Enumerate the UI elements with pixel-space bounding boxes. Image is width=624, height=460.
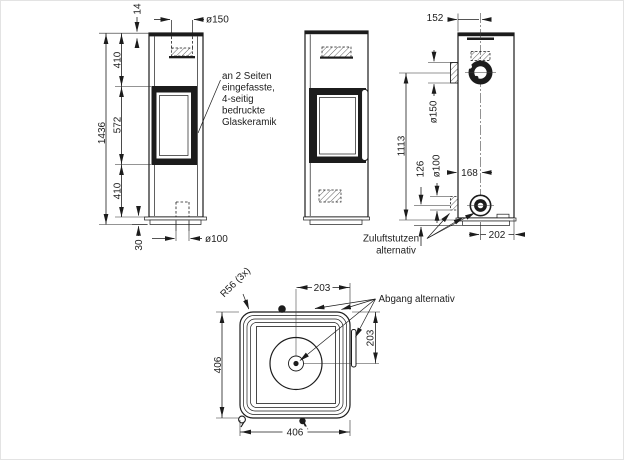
- dim-rear-flue-center-height: 1113: [397, 135, 408, 156]
- dim-top-width: 406: [287, 428, 304, 439]
- dim-rear-stub-diameter: ø150: [429, 100, 440, 123]
- dim-rear-center-to-edge: 202: [489, 230, 506, 241]
- glass-note-line-5: Glaskeramik: [222, 117, 277, 128]
- dim-rear-side-to-center: 168: [461, 168, 478, 179]
- side-floor-pipe-opening: [319, 190, 341, 202]
- abgang-note-label: Abgang alternativ: [379, 294, 455, 305]
- dim-top-top-to-center: 203: [366, 329, 377, 346]
- zuluft-note-line-1: Zuluftstutzen: [363, 234, 419, 245]
- side-top-flue-opening: [320, 47, 353, 59]
- top-door-handle: [352, 330, 357, 368]
- dim-front-flue-diameter: ø150: [206, 15, 229, 26]
- side-view: [304, 31, 370, 225]
- top-knob: [278, 305, 286, 313]
- glass-note-line-3: 4-seitig: [222, 94, 254, 105]
- glass-note-line-1: an 2 Seiten: [222, 71, 272, 82]
- front-door-window: [152, 86, 198, 165]
- technical-drawing-stove: 14 ø150 410 572 410 1436: [0, 0, 624, 460]
- dim-front-top-plate: 14: [133, 3, 144, 15]
- dim-top-center-to-right: 203: [314, 283, 331, 294]
- dim-rear-lower-stub-height: 126: [416, 160, 427, 177]
- dim-front-window-section: 572: [113, 116, 124, 133]
- dim-front-lower-section: 410: [113, 182, 124, 199]
- dim-rear-lower-stub-diameter: ø100: [432, 154, 443, 177]
- dim-rear-flue-center-offset: 152: [427, 13, 444, 24]
- zuluft-note-line-2: alternativ: [376, 246, 416, 257]
- rear-upper-stub: [451, 63, 459, 84]
- drawing-canvas: 14 ø150 410 572 410 1436: [0, 0, 624, 460]
- glass-note-line-4: bedruckte: [222, 106, 266, 117]
- rear-lower-stub: [451, 197, 459, 211]
- dim-front-total-height: 1436: [97, 121, 108, 144]
- dim-top-depth: 406: [213, 356, 224, 373]
- dim-front-floor-pipe-diameter: ø100: [205, 234, 228, 245]
- dim-front-upper-section: 410: [113, 51, 124, 68]
- door-handle: [362, 90, 369, 161]
- glass-note-line-2: eingefasste,: [222, 83, 275, 94]
- dim-front-plinth-height: 30: [134, 239, 145, 251]
- side-door-window: [309, 88, 368, 163]
